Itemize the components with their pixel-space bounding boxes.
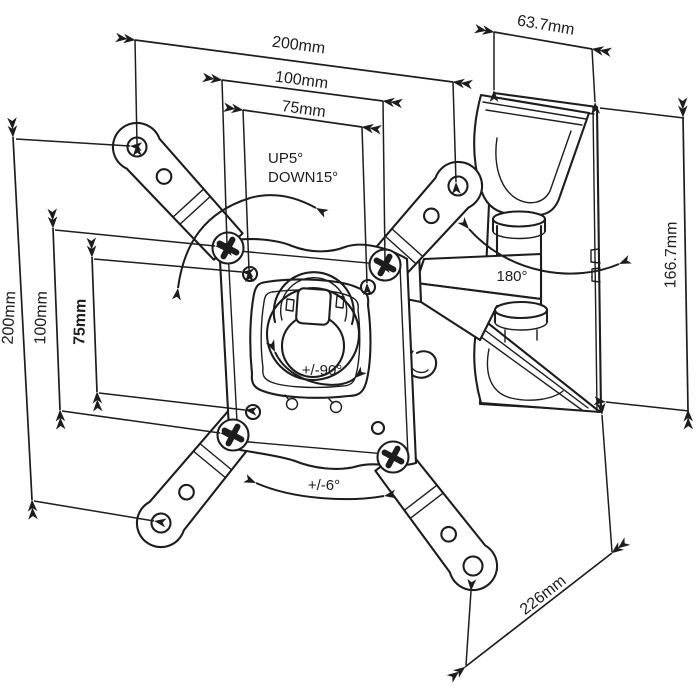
label-top-100: 100mm — [274, 69, 329, 93]
label-rotation-90: +/-90° — [302, 362, 343, 379]
label-arm-reach: 226mm — [517, 572, 570, 618]
label-left-100: 100mm — [32, 291, 51, 345]
dim-bracket-width: 63.7mm — [494, 12, 595, 102]
label-left-200: 200mm — [0, 291, 19, 345]
screw-bottom-left — [218, 420, 249, 451]
dim-left-75: 75mm — [71, 257, 245, 410]
dim-top-100: 100mm — [222, 69, 385, 261]
label-bracket-width: 63.7mm — [516, 12, 576, 38]
label-tilt-up: UP5° — [268, 150, 303, 167]
technical-drawing: 200mm 100mm 75mm 63.7mm 200mm 100mm 75mm — [0, 0, 700, 700]
tv-mount-dimension-diagram: 200mm 100mm 75mm 63.7mm 200mm 100mm 75mm — [0, 0, 700, 700]
hole-75-top-left — [243, 267, 257, 281]
screw-bottom-right — [378, 442, 409, 473]
dim-right-166: 166.7mm — [600, 108, 689, 411]
label-left-75: 75mm — [71, 298, 90, 345]
label-right-166: 166.7mm — [662, 221, 680, 288]
dim-arm-reach-226: 226mm — [465, 415, 612, 667]
label-top-200: 200mm — [271, 34, 326, 58]
label-swivel-180: 180° — [496, 268, 527, 285]
hole-75-bottom-left — [246, 405, 260, 419]
dim-left-100: 100mm — [32, 228, 220, 433]
hole-75-bottom-right — [372, 422, 384, 434]
screw-top-left — [213, 233, 244, 264]
angle-post-level-6: +/-6° — [256, 477, 384, 499]
hole-75-top-right — [361, 280, 375, 294]
label-post-level-6: +/-6° — [308, 477, 340, 494]
vesa-center-slot — [296, 288, 331, 325]
label-top-75: 75mm — [280, 98, 326, 121]
label-tilt-down: DOWN15° — [268, 169, 338, 186]
